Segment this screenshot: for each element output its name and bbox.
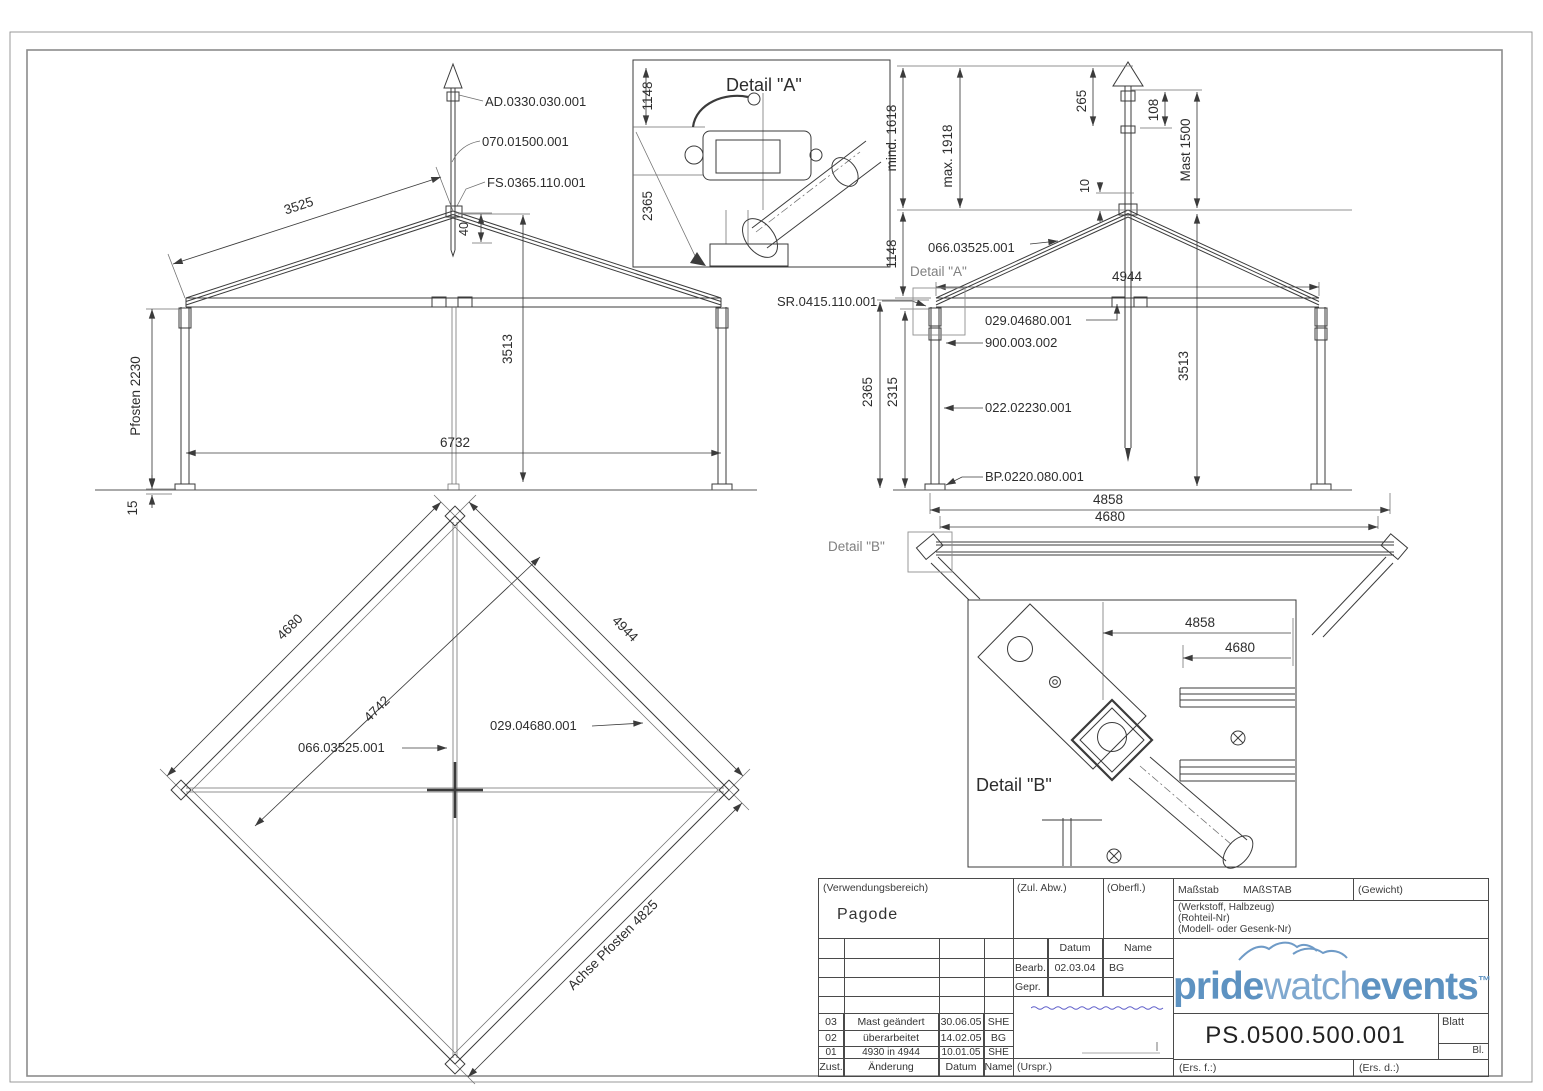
oberfl-label: (Oberfl.) [1107,882,1146,894]
dim-base: 15 [125,500,140,515]
detail-a-callout: Detail "A" [910,264,967,279]
plan-dim-4944: 4944 [609,613,641,645]
bl-label: Bl. [1438,1045,1484,1056]
part-base: BP.0220.080.001 [985,469,1084,484]
ers-d-label: (Ers. d.:) [1359,1062,1399,1074]
rev-datum: 10.01.05 [939,1046,984,1058]
signature-squiggle [1031,998,1164,1004]
rev-datum: 14.02.05 [939,1030,984,1046]
dim-1148: 1148 [884,239,899,268]
zul-abw-label: (Zul. Abw.) [1017,882,1067,894]
dim-2315: 2315 [885,377,900,407]
dim-4858: 4858 [1093,492,1123,507]
rev-name: SHE [984,1046,1013,1058]
ers-f-label: (Ers. f.:) [1179,1062,1216,1074]
logo-events: events [1360,965,1478,1008]
rev-aenderung: überarbeitet [844,1030,939,1046]
dim-width: 6732 [440,435,470,450]
rev-aenderung: 4930 in 4944 [844,1046,939,1058]
dim-10: 10 [1078,179,1092,193]
detail-b-dim-4858: 4858 [1185,615,1215,630]
urspr-label: (Urspr.) [1017,1061,1052,1073]
dim-108: 108 [1146,99,1161,122]
dim-rafter: 3525 [282,194,315,218]
rev-datum: 30.06.05 [939,1013,984,1030]
detail-a-title: Detail "A" [726,75,802,95]
part-label-ad: AD.0330.030.001 [485,94,586,109]
part-beam: 029.04680.001 [985,313,1072,328]
rev-zust: 02 [819,1030,844,1046]
product-name: Pagode [837,906,898,924]
side-elevation-view: mind. 1618 max. 1918 265 108 Mast 1500 1… [777,62,1390,529]
plan-part-truss: 066.03525.001 [298,740,385,755]
dim-max: max. 1918 [940,124,955,187]
logo-watch: watch [1263,965,1360,1008]
plan-part-beam: 029.04680.001 [490,718,577,733]
detail-a-view: Detail "A" 1148 2365 [633,60,890,267]
massstab-value: MAßSTAB [1243,884,1292,896]
revision-row: 03 Mast geändert 30.06.05 SHE [819,1013,1013,1030]
rev-name: SHE [984,1013,1013,1030]
detail-b-dim-4680: 4680 [1225,640,1255,655]
eave-plan-strip: Detail "B" [828,532,1408,637]
drawing-number: PS.0500.500.001 [1173,1013,1438,1059]
dim-height-right: 3513 [1176,351,1191,381]
dim-gap: 40 [457,222,471,236]
plan-dim-4680: 4680 [274,611,306,643]
logo-tm: ™ [1478,973,1491,988]
detail-a-dim-2365: 2365 [640,191,655,221]
dim-4944: 4944 [1112,269,1143,284]
part-sr: SR.0415.110.001 [777,294,877,309]
dim-post: Pfosten 2230 [128,356,143,436]
logo-pride: pride [1173,965,1263,1008]
gewicht-label: (Gewicht) [1358,884,1403,896]
rev-name: BG [984,1030,1013,1046]
part-label-fs: FS.0365.110.001 [487,175,586,190]
roof-plan-view: 4680 4944 4742 Achse Pfosten 4825 066.03… [160,495,750,1084]
approval-header-row: Datum Name [1013,938,1173,958]
bearb-datum: 02.03.04 [1048,958,1103,977]
drawing-sheet: AD.0330.030.001 070.01500.001 FS.0365.11… [0,0,1543,1091]
plan-dim-4742: 4742 [361,693,393,725]
massstab-label: Maßstab [1178,884,1219,896]
rev-datum-header: Datum [939,1058,984,1076]
front-elevation-view: AD.0330.030.001 070.01500.001 FS.0365.11… [95,64,757,516]
gepr-label: Gepr. [1013,977,1048,996]
logo-text: pridewatchevents™ [1173,960,1488,1008]
dim-2365: 2365 [860,377,875,407]
rev-zust: 01 [819,1046,844,1058]
rev-name-header: Name [984,1058,1013,1076]
rev-zust: 03 [819,1013,844,1030]
detail-a-dim-1148: 1148 [640,81,655,110]
title-block: (Verwendungsbereich) Pagode (Zul. Abw.) … [818,878,1489,1077]
aenderung-header: Änderung [844,1058,939,1076]
gepr-row: Gepr. [1013,977,1173,996]
dim-mast: Mast 1500 [1178,118,1193,181]
plan-dim-achse: Achse Pfosten 4825 [565,897,661,993]
part-truss: 066.03525.001 [928,240,1015,255]
detail-b-view: 4858 4680 Detail "B" [968,600,1296,874]
bearb-label: Bearb. [1013,958,1048,977]
revision-row: 01 4930 in 4944 10.01.05 SHE [819,1046,1013,1058]
zust-header: Zust. [819,1058,844,1076]
name-header: Name [1103,938,1173,958]
revision-header-row: Zust. Änderung Datum Name [819,1058,1013,1076]
datum-header: Datum [1048,938,1103,958]
rev-aenderung: Mast geändert [844,1013,939,1030]
bearb-row: Bearb. 02.03.04 BG [1013,958,1173,977]
dim-mind: mind. 1618 [884,105,899,172]
detail-b-callout: Detail "B" [828,539,885,554]
bearb-name: BG [1103,958,1173,977]
part-post: 022.02230.001 [985,400,1072,415]
detail-b-title: Detail "B" [976,775,1052,795]
blatt-label: Blatt [1442,1016,1464,1028]
part-bracket: 900.003.002 [985,335,1057,350]
company-logo: pridewatchevents™ [1173,938,1488,1013]
modell-label: (Modell- oder Gesenk-Nr) [1178,924,1291,935]
part-label-mast: 070.01500.001 [482,134,569,149]
dim-265: 265 [1074,90,1089,113]
werkstoff-label: (Werkstoff, Halbzeug) [1178,902,1274,913]
verwendungsbereich-label: (Verwendungsbereich) [823,882,928,894]
revision-row: 02 überarbeitet 14.02.05 BG [819,1030,1013,1046]
dim-4680: 4680 [1095,509,1125,524]
rohteil-label: (Rohteil-Nr) [1178,913,1230,924]
dim-height: 3513 [500,334,515,364]
